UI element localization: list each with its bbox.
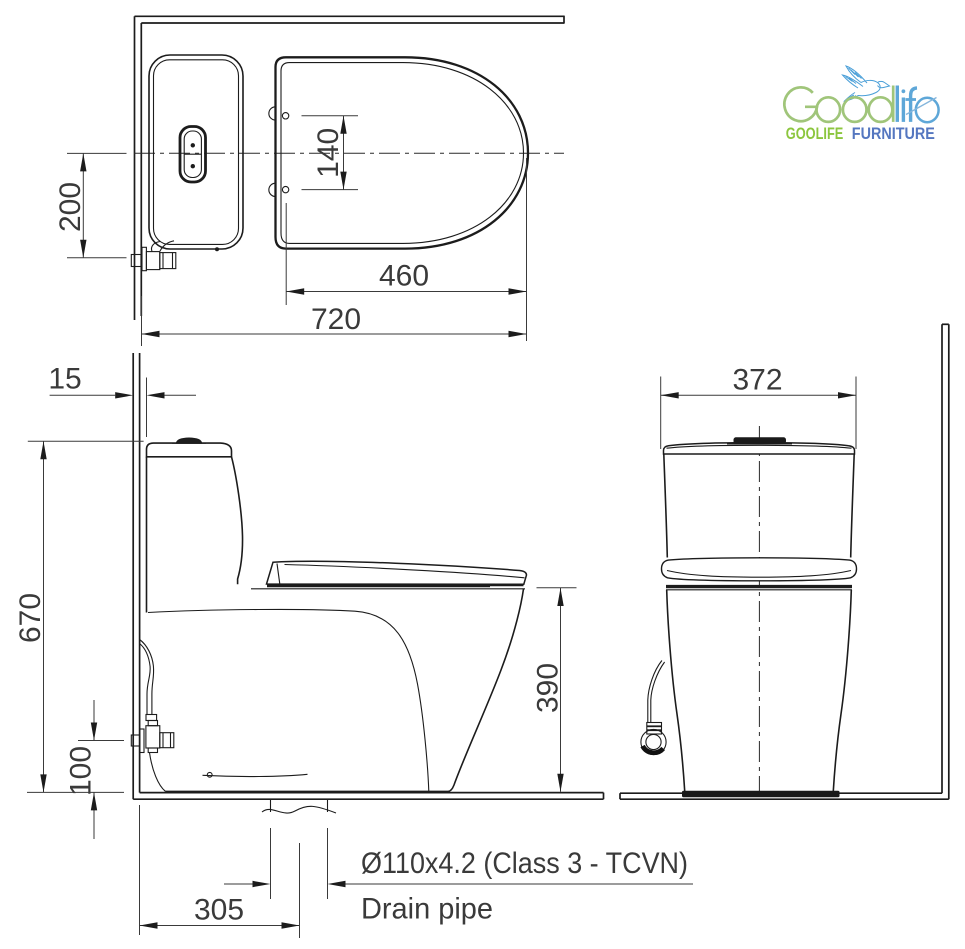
svg-text:Drain pipe: Drain pipe — [361, 893, 493, 926]
svg-text:200: 200 — [54, 182, 87, 232]
svg-text:140: 140 — [312, 128, 345, 178]
svg-text:GOOLIFE: GOOLIFE — [786, 125, 844, 143]
svg-text:100: 100 — [65, 746, 98, 796]
svg-text:FURNITURE: FURNITURE — [852, 125, 935, 143]
svg-text:460: 460 — [379, 260, 429, 293]
svg-text:Ø110x4.2 (Class 3 - TCVN): Ø110x4.2 (Class 3 - TCVN) — [361, 847, 688, 880]
svg-text:15: 15 — [48, 363, 81, 396]
svg-text:390: 390 — [532, 663, 565, 713]
svg-text:372: 372 — [732, 363, 782, 396]
svg-text:305: 305 — [194, 894, 244, 927]
svg-text:720: 720 — [311, 303, 361, 336]
svg-text:670: 670 — [14, 593, 47, 643]
